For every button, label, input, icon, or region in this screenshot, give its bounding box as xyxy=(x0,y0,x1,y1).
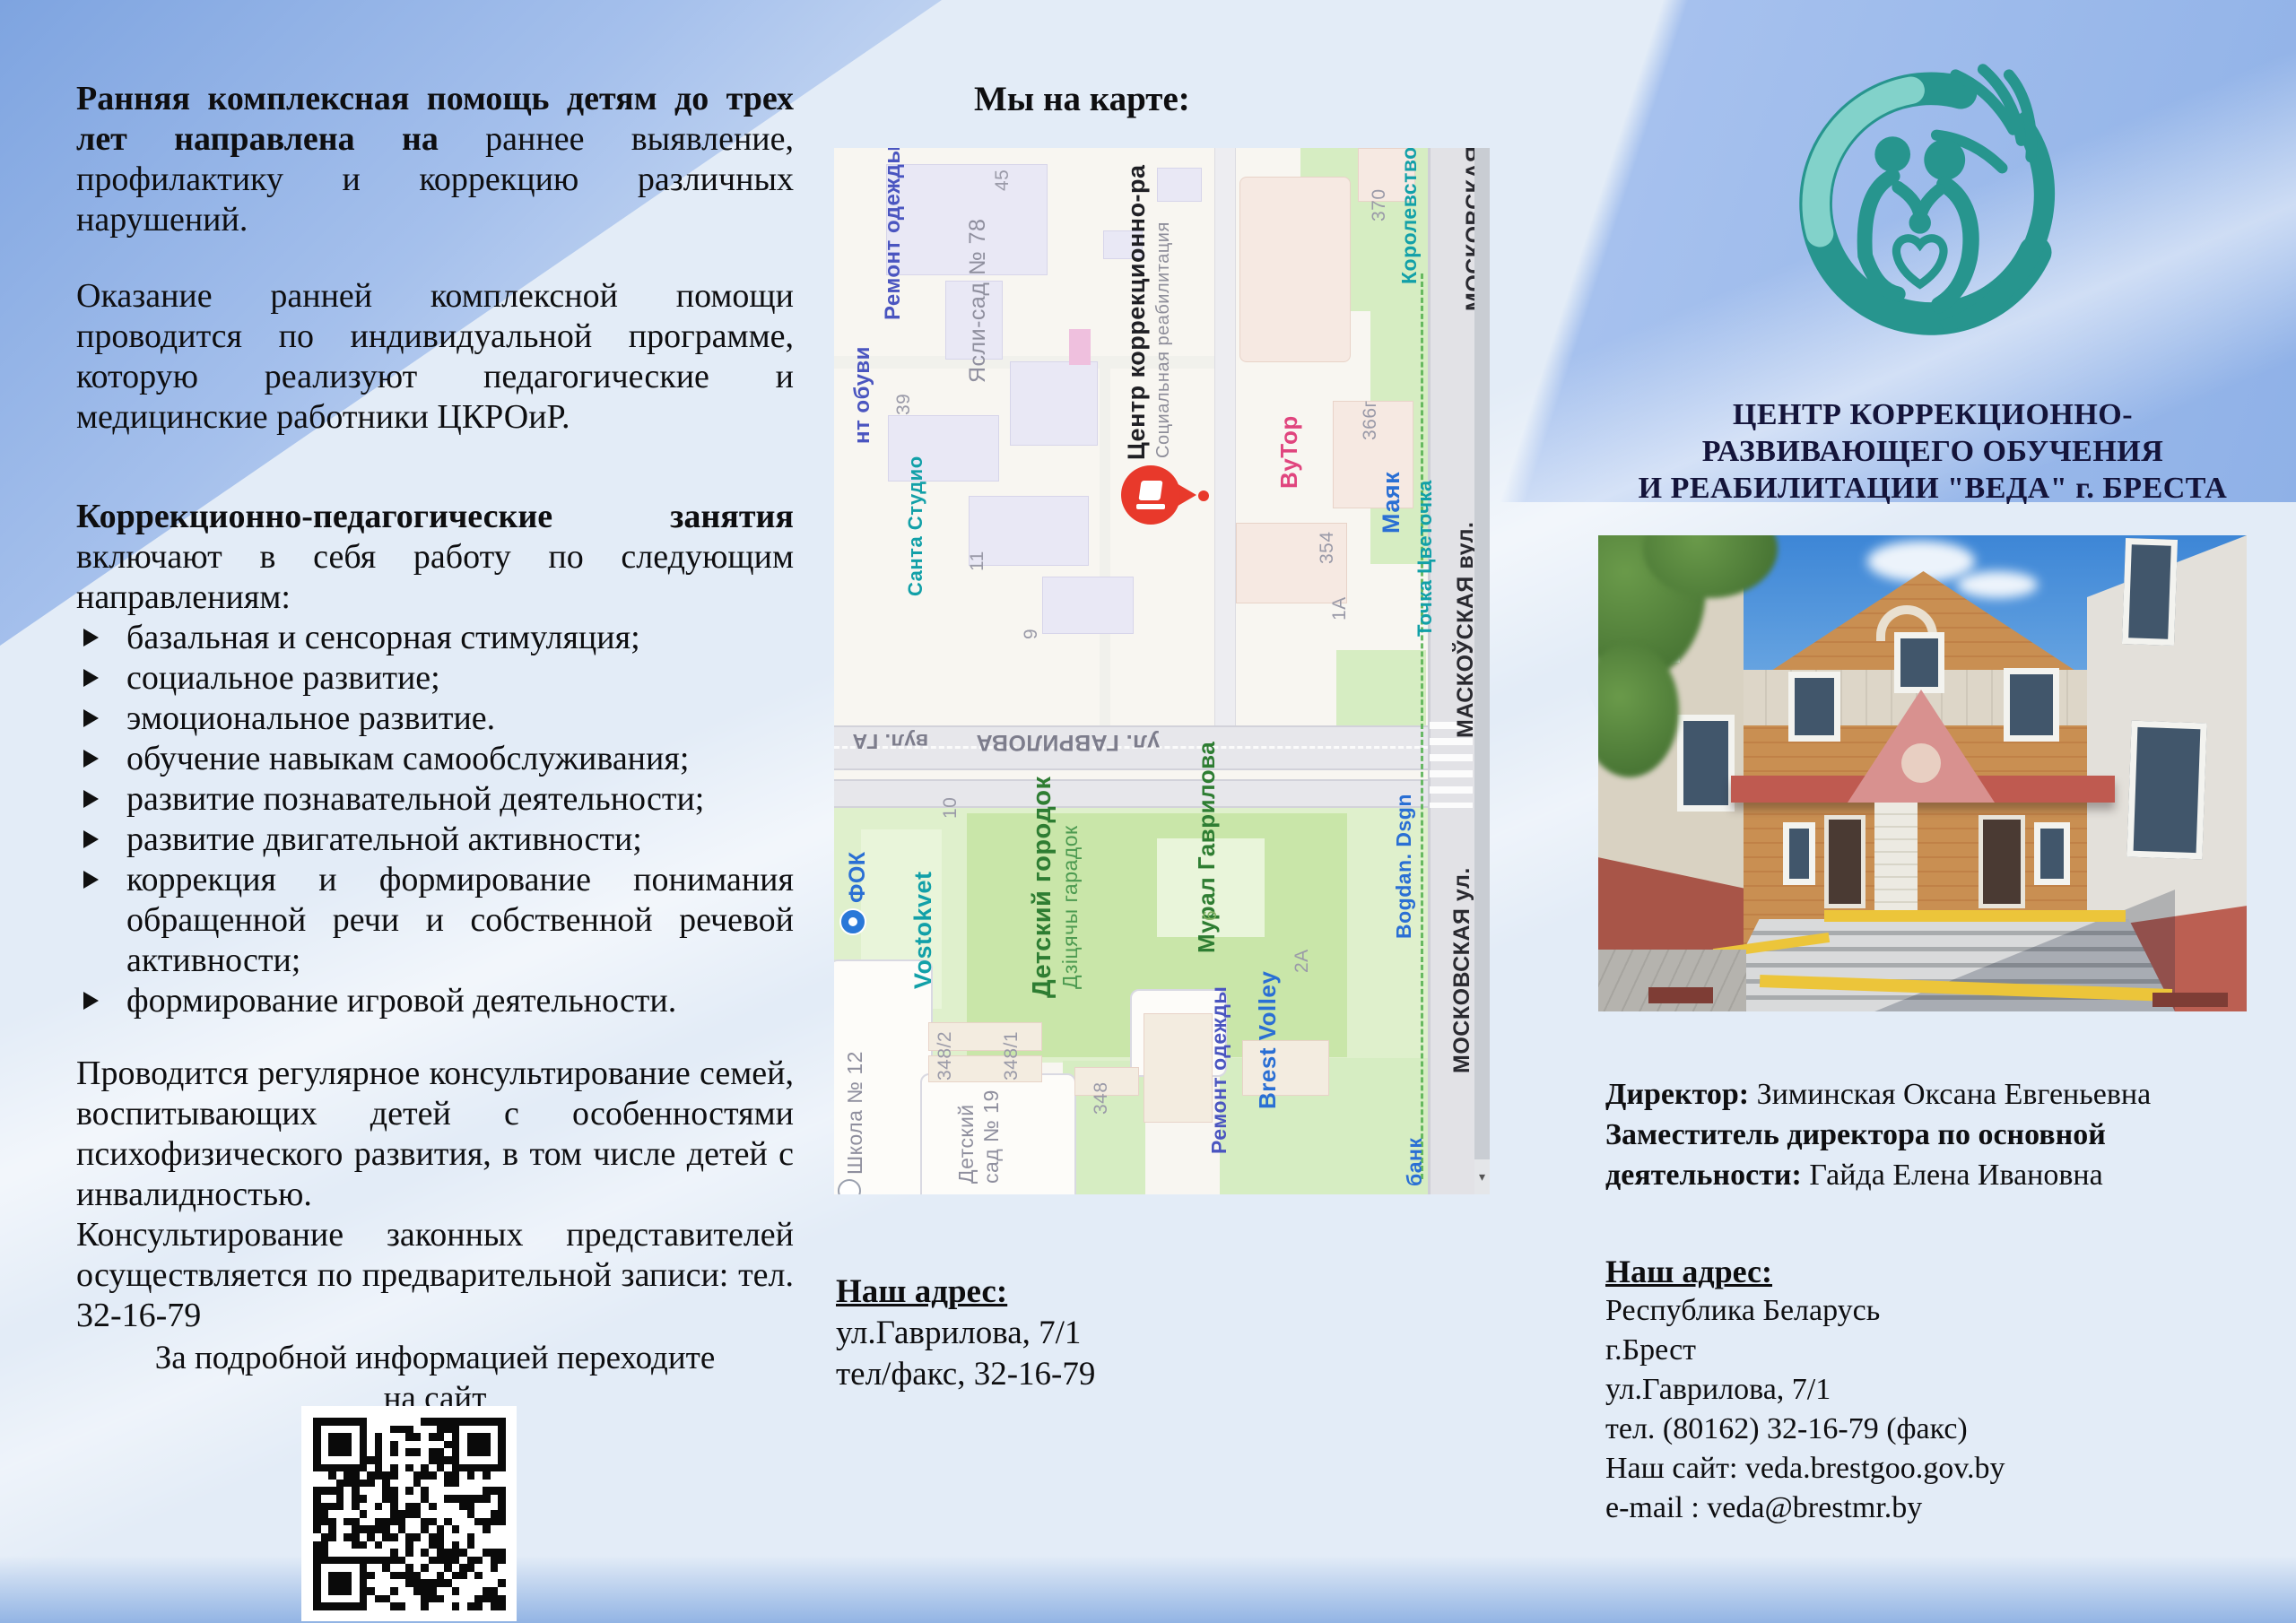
map-label: Детский xyxy=(954,1104,978,1184)
map-label: Ремонт одежды xyxy=(1207,986,1231,1154)
center-logo xyxy=(1783,41,2084,360)
map-label: ФОК xyxy=(845,851,871,903)
address-line: тел/факс, 32-16-79 xyxy=(836,1354,1410,1395)
map-label: 354 xyxy=(1317,531,1338,564)
deputy-line: Заместитель директора по основной деятел… xyxy=(1605,1115,2239,1195)
appointment-paragraph: Консультирование законных представителей… xyxy=(76,1215,794,1336)
map-label: 45 xyxy=(992,169,1013,191)
consulting-paragraph: Проводится регулярное консультирование с… xyxy=(76,1054,794,1215)
building-photo xyxy=(1598,535,2247,1011)
program-paragraph: Оказание ранней комплексной помощи прово… xyxy=(76,276,794,438)
address-heading: Наш адрес: xyxy=(1605,1252,2239,1291)
map-label: Точка Цветочка xyxy=(1413,480,1437,637)
map-label: сад № 19 xyxy=(979,1089,1004,1184)
map-address-block: Наш адрес: ул.Гаврилова, 7/1 тел/факс, 3… xyxy=(836,1271,1410,1395)
center-title: ЦЕНТР КОРРЕКЦИОННО- РАЗВИВАЮЩЕГО ОБУЧЕНИ… xyxy=(1605,396,2260,507)
intro-paragraph: Ранняя комплексная помощь детям до трех … xyxy=(76,79,794,240)
map-label: Мурал Гаврилова xyxy=(1193,742,1221,953)
sessions-heading: Коррекционно-педагогические занятия вклю… xyxy=(76,497,794,618)
email-line: e-mail : veda@brestmr.by xyxy=(1605,1488,2239,1528)
map-label: Детский городок xyxy=(1028,776,1057,998)
map-label: 9 xyxy=(1021,629,1042,639)
map-label: Ремонт одежды xyxy=(881,148,906,320)
map-label: 1А xyxy=(1329,596,1351,621)
left-column: Ранняя комплексная помощь детям до трех … xyxy=(76,79,794,1336)
list-item: развитие двигательной активности; xyxy=(76,820,794,860)
map-label: Социальная реабилитация xyxy=(1153,221,1174,458)
director-line: Директор: Зиминская Оксана Евгеньевна xyxy=(1605,1074,2239,1115)
map-label: 348/2 xyxy=(935,1031,956,1081)
contact-block: Наш адрес: Республика Беларусь г.Брест у… xyxy=(1605,1252,2239,1528)
scroll-down-arrow-icon[interactable]: ▾ xyxy=(1474,1159,1490,1194)
map-label: 11 xyxy=(967,551,988,571)
address-line: тел. (80162) 32-16-79 (факс) xyxy=(1605,1410,2239,1449)
list-item: развитие познавательной деятельности; xyxy=(76,779,794,820)
city-map: Ремонт одеждынт обувиЯсли-сад № 784539Це… xyxy=(834,148,1490,1194)
list-item: базальная и сенсорная стимуляция; xyxy=(76,618,794,658)
map-label: Vostokvet xyxy=(909,871,937,989)
address-line: Республика Беларусь xyxy=(1605,1291,2239,1331)
map-label: Дзіцячы гарадок xyxy=(1058,825,1083,989)
list-item: коррекция и формирование понимания обращ… xyxy=(76,860,794,981)
list-item: социальное развитие; xyxy=(76,658,794,699)
map-label: ул. ГАВРИЛОВА xyxy=(976,729,1160,755)
map-title: Мы на карте: xyxy=(974,79,1476,119)
map-label: Санта Студио xyxy=(904,456,927,596)
map-scrollbar[interactable] xyxy=(1474,148,1490,1194)
map-label: Центр коррекционно-ра xyxy=(1123,164,1151,460)
map-label: 370 xyxy=(1369,188,1390,221)
map-label: 2А xyxy=(1291,949,1313,973)
list-item: обучение навыкам самообслуживания; xyxy=(76,739,794,779)
map-label: Маяк xyxy=(1378,472,1405,534)
address-line: г.Брест xyxy=(1605,1331,2239,1370)
map-label: Королевство С xyxy=(1397,148,1422,284)
address-heading: Наш адрес: xyxy=(836,1271,1410,1313)
map-label: банк xyxy=(1403,1138,1427,1186)
directions-list: базальная и сенсорная стимуляция; социал… xyxy=(76,618,794,1021)
map-label: МОСКОВСКАЯ ул. xyxy=(1449,867,1475,1073)
website-line: Наш сайт: veda.brestgoo.gov.by xyxy=(1605,1449,2239,1488)
list-item: эмоциональное развитие. xyxy=(76,699,794,739)
map-label: 10 xyxy=(940,797,961,819)
map-pin-icon xyxy=(1121,465,1180,525)
list-item: формирование игровой деятельности. xyxy=(76,981,794,1021)
map-label: 366г xyxy=(1360,400,1381,440)
qr-code xyxy=(301,1406,517,1621)
map-label: вул. ГА xyxy=(852,729,928,753)
map-label: 348/1 xyxy=(1001,1031,1022,1081)
map-label: Brest Volley xyxy=(1254,971,1282,1109)
management-block: Директор: Зиминская Оксана Евгеньевна За… xyxy=(1605,1074,2239,1195)
map-label: Школа № 12 xyxy=(843,1051,867,1175)
map-label: 6 xyxy=(1200,910,1222,921)
brochure-page: Ранняя комплексная помощь детям до трех … xyxy=(0,0,2296,1623)
map-label: 348 xyxy=(1091,1081,1112,1115)
map-label: ВуТор xyxy=(1275,415,1303,489)
map-label: нт обуви xyxy=(850,346,875,444)
map-label: Bogdan. Dsgn xyxy=(1392,794,1416,939)
map-pin-dot xyxy=(1198,490,1209,501)
map-label: Ясли-сад № 78 xyxy=(965,219,991,383)
address-line: ул.Гаврилова, 7/1 xyxy=(1605,1370,2239,1410)
address-line: ул.Гаврилова, 7/1 xyxy=(836,1313,1410,1354)
map-label: 39 xyxy=(893,394,915,415)
